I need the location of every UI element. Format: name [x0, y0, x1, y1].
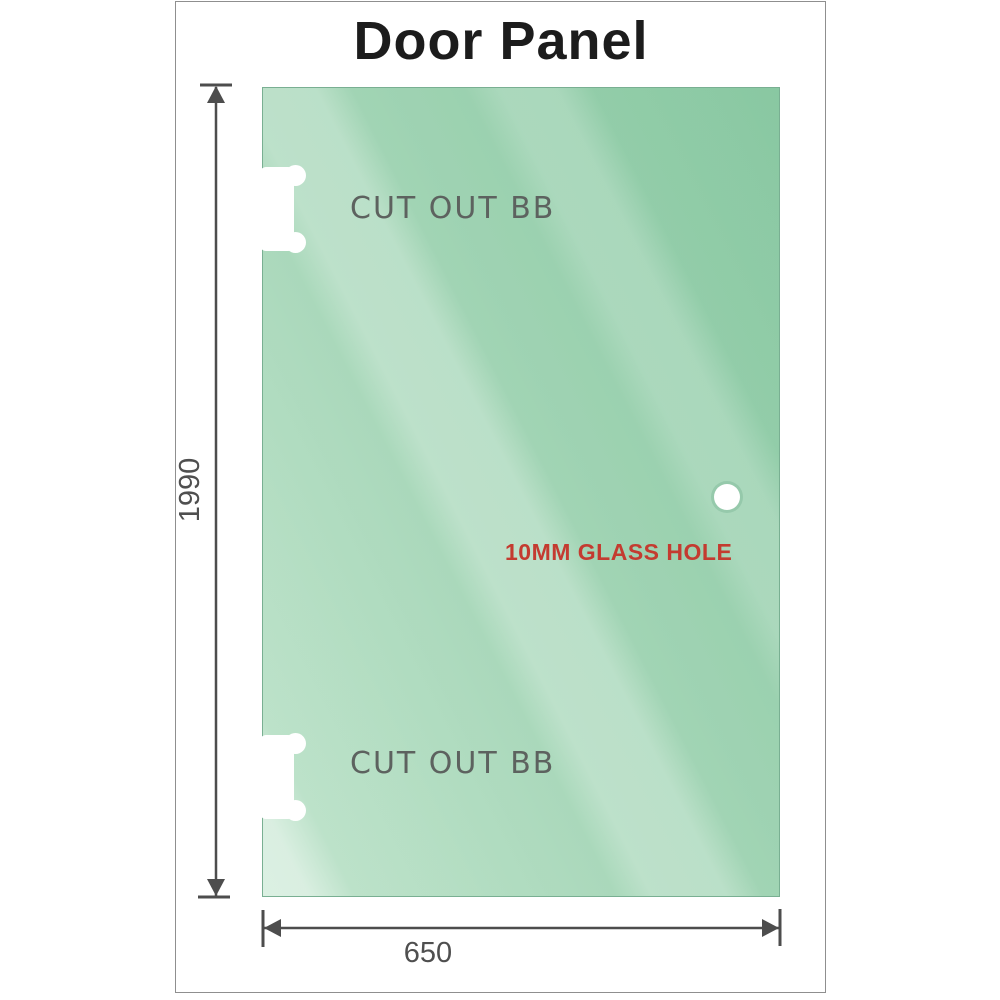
glass-hole [714, 484, 740, 510]
page-title: Door Panel [176, 10, 826, 72]
cutout-bottom-label: CUT OUT BB [350, 746, 555, 781]
width-dimension-label: 650 [358, 937, 498, 970]
glass-hole-label: 10MM GLASS HOLE [505, 539, 715, 566]
height-dimension-label: 1990 [174, 420, 206, 560]
cutout-top-label: CUT OUT BB [350, 191, 555, 226]
hinge-cutout-bottom [260, 735, 294, 819]
hinge-cutout-top [260, 167, 294, 251]
door-panel-diagram: Door Panel CUT OUT BB CUT OUT BB 10MM GL… [0, 0, 1000, 1000]
